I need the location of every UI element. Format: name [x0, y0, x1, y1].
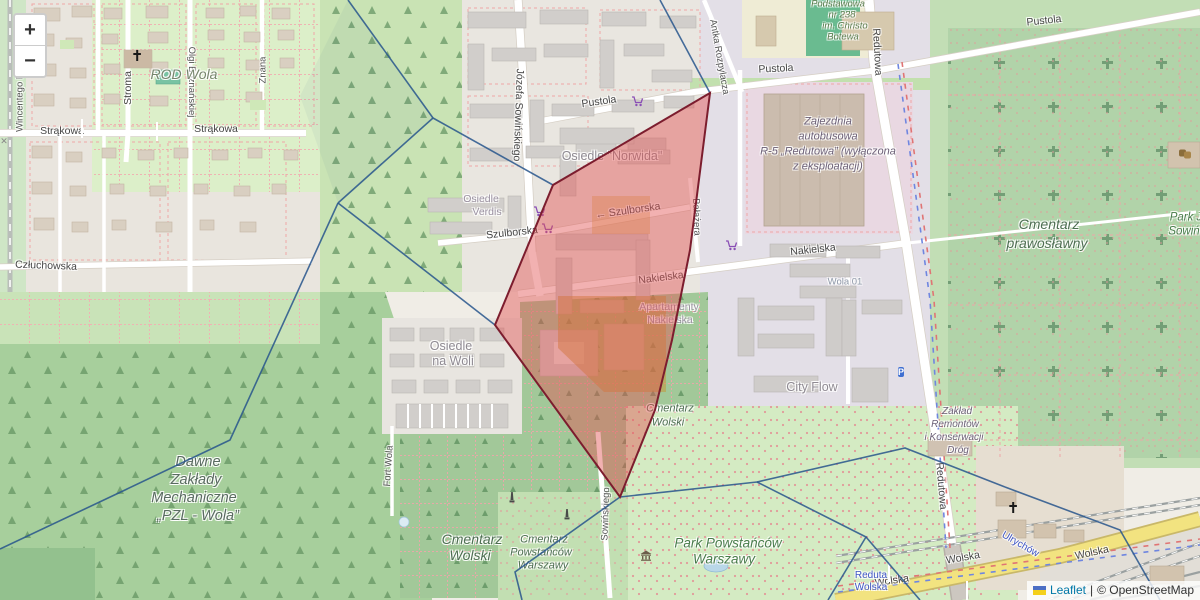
voronoi-edge[interactable] — [757, 482, 866, 600]
attribution: Leaflet | © OpenStreetMap — [1027, 581, 1200, 600]
voronoi-edge[interactable] — [338, 203, 495, 325]
selected-region-polygon[interactable] — [495, 93, 710, 497]
zoom-control: + − — [13, 13, 47, 78]
zoom-in-button[interactable]: + — [15, 15, 45, 46]
ukraine-flag-icon — [1033, 586, 1046, 595]
voronoi-edge[interactable] — [0, 203, 338, 549]
map[interactable]: StrąkowaStrąkowaStromaOlgi BoznańskiejWi… — [0, 0, 1200, 600]
voronoi-edge[interactable] — [515, 497, 620, 600]
leaflet-link[interactable]: Leaflet — [1050, 583, 1086, 597]
voronoi-edge[interactable] — [620, 482, 757, 497]
selected-region-layer[interactable] — [495, 93, 710, 497]
voronoi-cell-tint — [300, 0, 433, 203]
voronoi-edge[interactable] — [866, 537, 920, 600]
openstreetmap-link[interactable]: © OpenStreetMap — [1097, 583, 1194, 597]
voronoi-edge[interactable] — [757, 448, 1005, 487]
zoom-out-button[interactable]: − — [15, 46, 45, 76]
voronoi-edge[interactable] — [433, 118, 553, 185]
overlay-layer — [0, 0, 1200, 600]
attribution-separator: | — [1090, 583, 1093, 597]
voronoi-edge[interactable] — [660, 0, 710, 93]
